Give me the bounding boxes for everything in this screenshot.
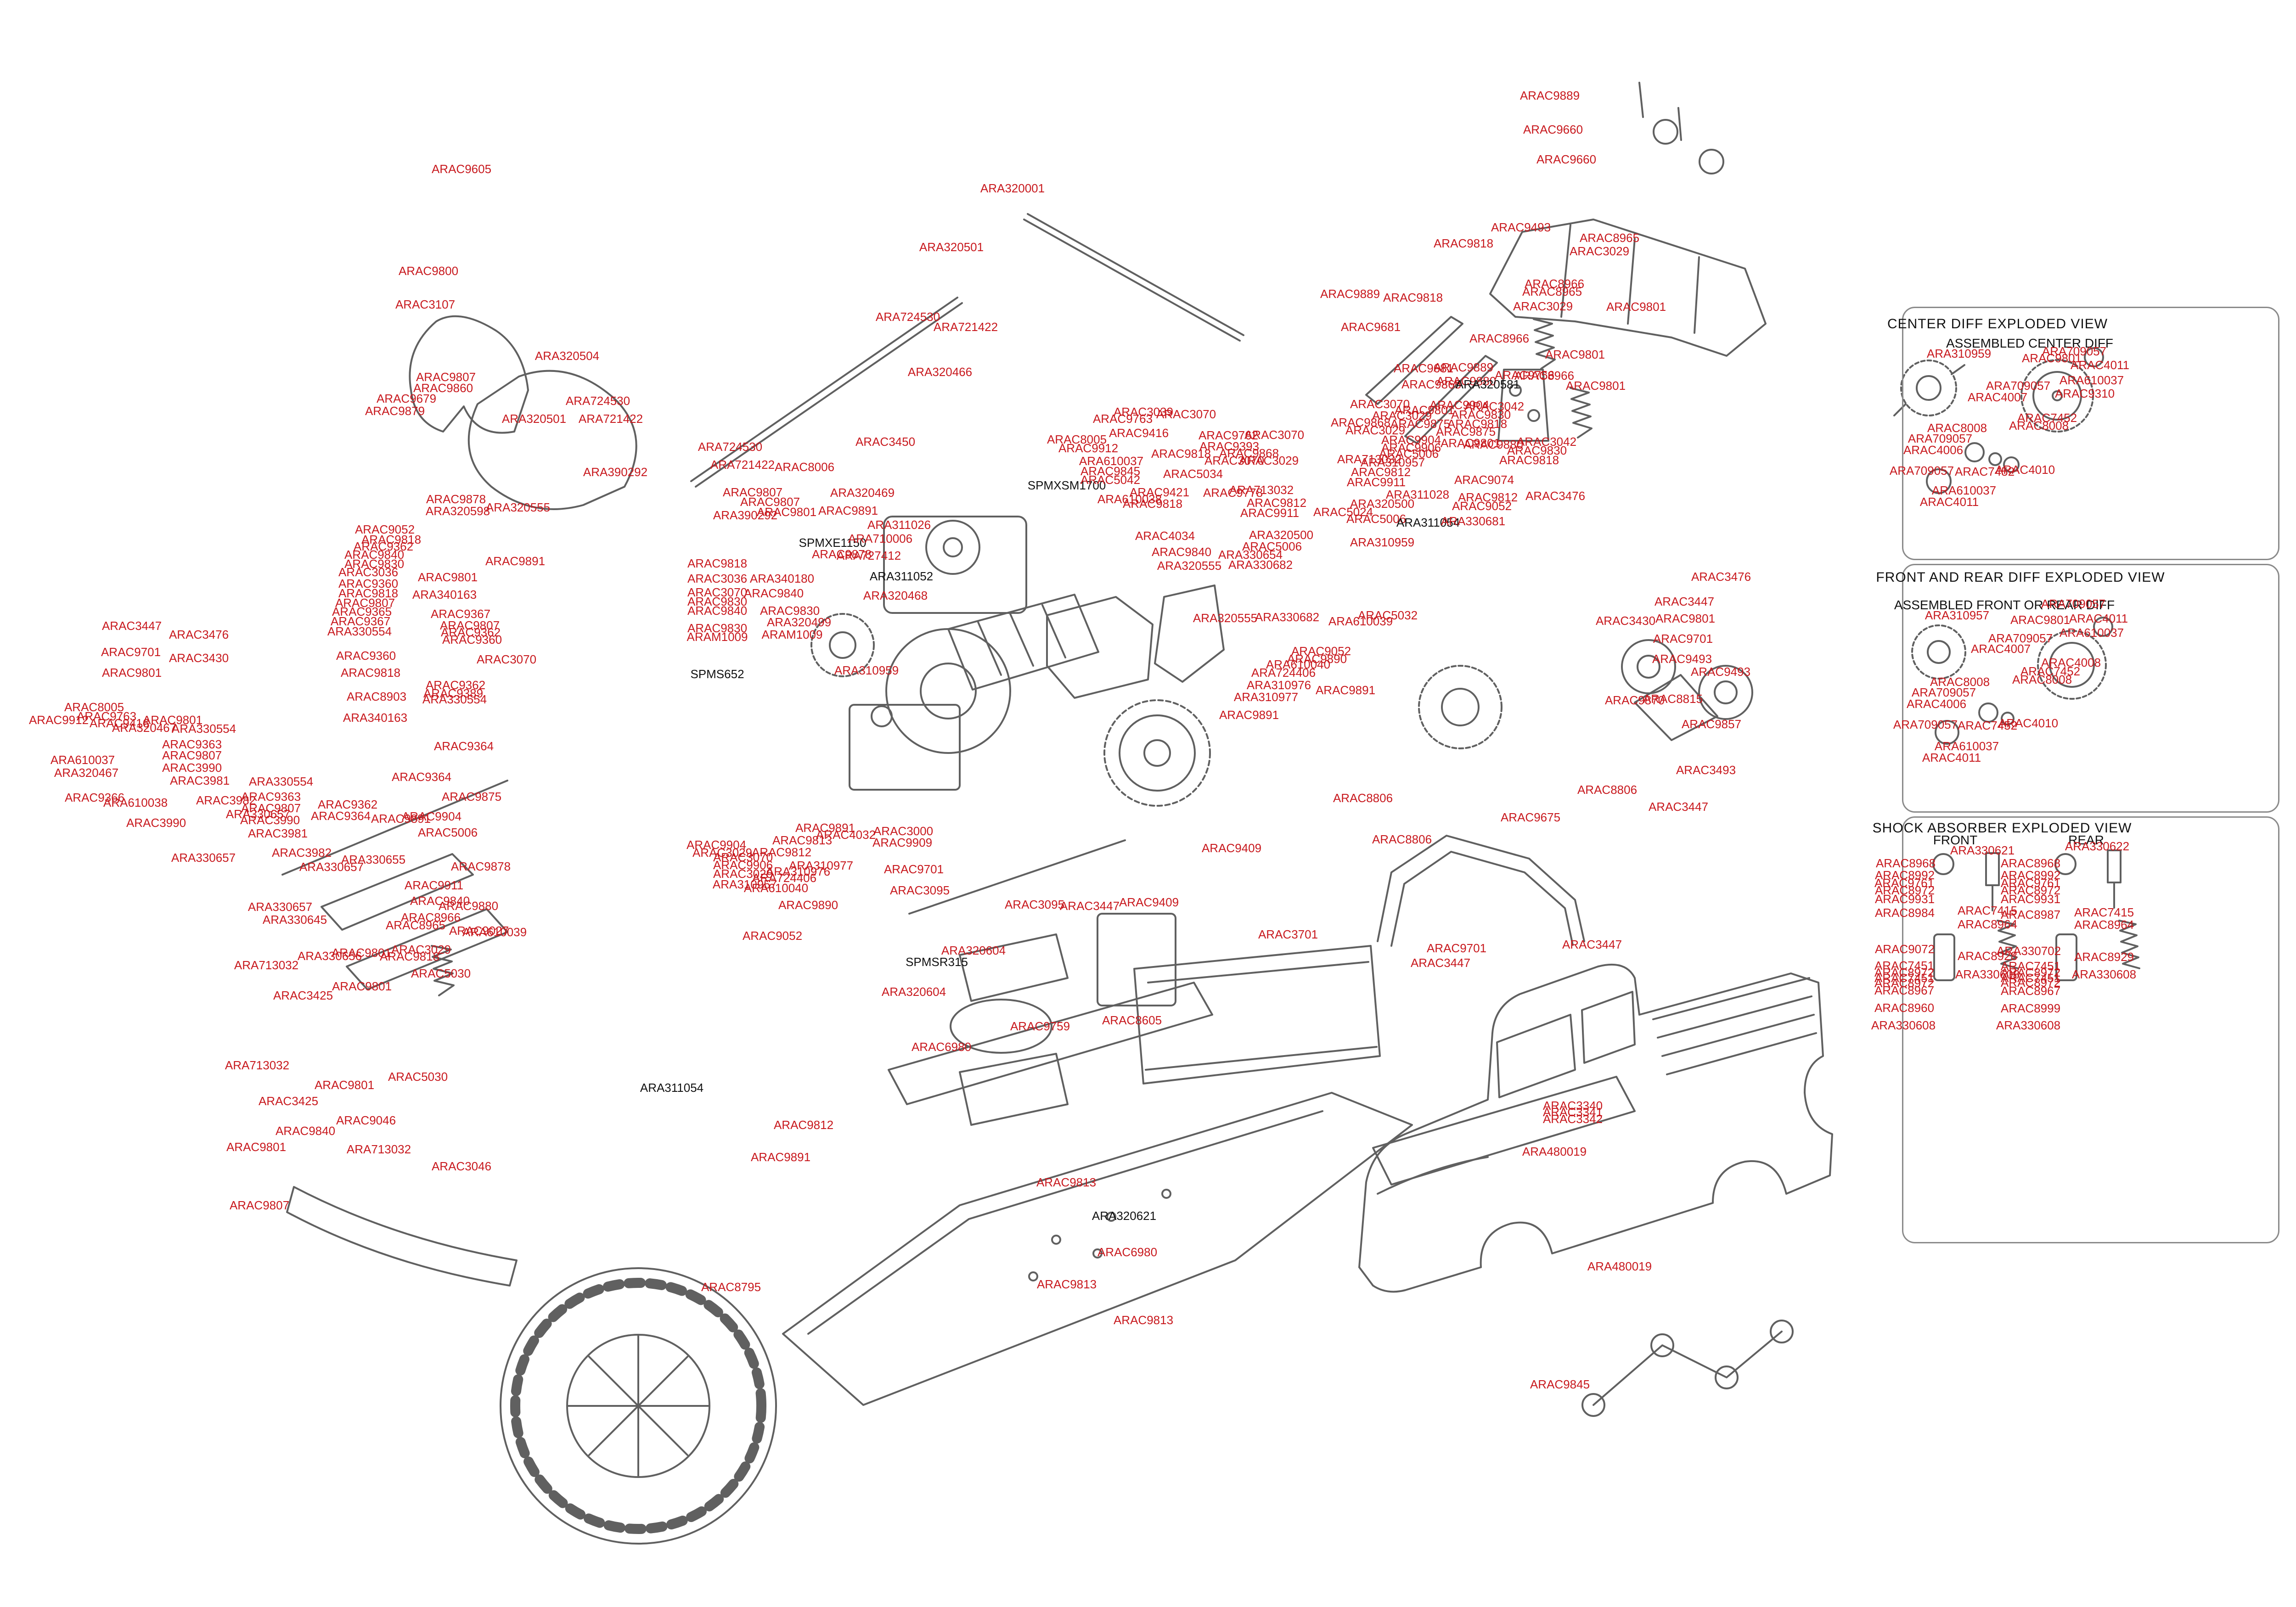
part-label: ARAC8605: [1102, 1014, 1162, 1026]
part-label: ARAC9818: [1151, 448, 1211, 460]
exploded-parts-diagram-page: ARAC9605ARAC9800ARAC3107ARAC9807ARAC9860…: [0, 0, 2296, 1607]
part-label: ARAC9931: [2001, 893, 2060, 905]
part-label: ARAC9891: [485, 555, 545, 567]
part-label: ARAC9911: [405, 879, 463, 891]
part-label: ARAC5034: [1163, 468, 1223, 480]
part-label: ARAC3070: [477, 653, 536, 665]
part-label: ARAC9360: [336, 650, 396, 662]
part-label: ARA330645: [263, 914, 327, 926]
part-label: ARA721422: [934, 321, 998, 333]
part-label: ARA310977: [1234, 691, 1298, 703]
part-label: ARAC3447: [1654, 596, 1714, 607]
part-label: ARA724530: [698, 441, 762, 453]
part-label: ARAC9801: [315, 1079, 374, 1091]
part-label: ARAC3476: [1691, 571, 1751, 583]
part-label: ARA610040: [744, 882, 808, 894]
part-label: ARAC9360: [442, 634, 502, 646]
part-label: ARAC3070: [1244, 429, 1304, 441]
part-label: ARAC9931: [1875, 893, 1935, 905]
part-label: ARAC9911: [1347, 476, 1406, 488]
part-label: ARAC9912: [1058, 442, 1118, 454]
part-label: ARA721422: [710, 459, 775, 471]
part-label: ARA480019: [1587, 1260, 1652, 1272]
part-label: ARAC3982: [272, 847, 332, 859]
part-label: ARAC9493: [1491, 221, 1551, 233]
part-label: ARAC9701: [1427, 942, 1486, 954]
part-label: ARAC8806: [1577, 784, 1637, 796]
part-label: ARA320555: [1157, 560, 1221, 572]
part-label: ARAC9909: [872, 837, 932, 848]
panel-title-front-rear-diff: FRONT AND REAR DIFF EXPLODED VIEW: [1876, 571, 2165, 584]
part-label: ARA610039: [462, 926, 527, 938]
part-label: ARA310977: [789, 860, 853, 871]
part-label: ARA709057: [2042, 345, 2106, 357]
part-label: ARAC3036: [687, 573, 747, 584]
part-label: ARA330657: [171, 852, 236, 864]
part-label: ARAC9416: [1109, 427, 1169, 439]
part-label: ARAC3476: [1525, 490, 1585, 502]
part-label: ARAM1009: [762, 629, 823, 641]
part-label: ARAC3701: [1258, 928, 1318, 940]
part-label: ARA320604: [941, 944, 1006, 956]
part-label: ARAC3029: [1570, 245, 1629, 257]
part-label: ARA320555: [486, 501, 550, 513]
part-label: ARA311052: [870, 570, 933, 582]
part-label: ARAC3107: [395, 298, 455, 310]
part-label: ARAC9052: [743, 930, 802, 942]
part-label: ARAC9878: [451, 860, 511, 872]
part-label: ARA311026: [867, 519, 931, 531]
part-label: ARAC9605: [432, 163, 491, 175]
part-label: ARAC9701: [1653, 633, 1713, 645]
part-label: ARAC3447: [1411, 957, 1470, 969]
part-label: ARAC4010: [1998, 717, 2058, 729]
part-label: ARAC9878: [426, 493, 486, 505]
part-label: ARAC3095: [1005, 899, 1064, 910]
part-label: ARAC9801: [2010, 614, 2070, 626]
part-label: ARAC8987: [2001, 909, 2060, 921]
part-label: ARAC9801: [226, 1141, 286, 1153]
part-label: ARA340163: [412, 589, 477, 601]
part-label: ARAC9759: [1010, 1020, 1070, 1032]
part-label: ARAC9818: [1499, 454, 1559, 466]
part-label: ARAC8960: [1874, 1002, 1934, 1014]
part-label: ARA710006: [848, 533, 912, 545]
part-label: ARAC9364: [392, 771, 451, 783]
part-label: ARA320500: [1350, 498, 1414, 510]
motor-drawing: [886, 595, 1098, 753]
part-label: ARAC9891: [1316, 684, 1375, 696]
part-label: ARAC3447: [1562, 938, 1622, 950]
part-label: ARAC3450: [855, 436, 915, 448]
part-label: ARAC3990: [240, 814, 300, 826]
part-label: ARA330682: [1228, 559, 1293, 571]
part-label: ARAC8903: [347, 691, 406, 702]
part-label: ARA330554: [172, 723, 236, 735]
part-label: ARAC9801: [102, 667, 162, 679]
part-label: ARAC9364: [434, 740, 494, 752]
part-label: ARAC3981: [170, 775, 230, 787]
part-label: ARA610037: [2060, 627, 2124, 639]
part-label: ARAC9801: [1566, 380, 1626, 392]
part-label: ARAC9807: [162, 749, 222, 761]
part-label: ARAC9818: [1434, 237, 1493, 249]
part-label: ARAC6980: [1097, 1246, 1157, 1258]
part-label: ARAC3476: [169, 629, 229, 641]
part-label: ARA330608: [1996, 1019, 2060, 1031]
part-label: ARA320501: [502, 413, 566, 425]
part-label: ARAC8968: [2001, 857, 2060, 869]
part-label: ARAC9818: [1447, 418, 1507, 430]
part-label: ARAC4007: [1971, 643, 2031, 655]
part-label: ARAC3046: [432, 1160, 491, 1172]
part-label: ARAC4006: [1907, 698, 1966, 710]
part-label: ARAC5030: [388, 1071, 448, 1083]
part-label: ARAC9818: [687, 557, 747, 569]
part-label: ARAC9660: [1523, 124, 1583, 135]
part-label: ARAC9875: [442, 791, 501, 803]
part-label: ARAM1009: [687, 631, 748, 643]
part-label: ARAC9818: [380, 950, 439, 962]
part-label: ARAC4010: [1995, 464, 2055, 476]
part-label: ARAC8984: [1875, 907, 1935, 919]
part-label: ARA320555: [1193, 612, 1257, 624]
part-label: ARAC8966: [1514, 370, 1574, 382]
part-label: ARAC8965: [1580, 232, 1639, 244]
part-label: ARAC9072: [1875, 943, 1935, 955]
part-label: ARAC3990: [126, 817, 186, 829]
part-label: ARAC4006: [1903, 444, 1963, 456]
part-label: ARAC9840: [687, 605, 747, 617]
part-label: ARAC9889: [1434, 361, 1493, 373]
part-label: ARAC9911: [1240, 507, 1299, 519]
part-label: ARAC9801: [1655, 612, 1715, 624]
part-label: ARA320598: [426, 505, 490, 517]
part-label: ARAC9857: [1682, 718, 1741, 730]
part-label: ARA330554: [249, 775, 313, 787]
part-label: ARAC9889: [1520, 90, 1580, 101]
part-label: ARAC8008: [2009, 420, 2069, 432]
part-label: ARA330554: [422, 693, 487, 705]
part-label: ARAC9891: [1219, 709, 1279, 721]
part-label: ARA709057: [1893, 719, 1958, 730]
part-label: ARAC4011: [1922, 752, 1981, 764]
part-label: ARAC8966: [1469, 332, 1529, 344]
part-label: ARAC9409: [1119, 896, 1179, 908]
front-diff-drawing: [1419, 666, 1502, 748]
part-label: ARAC9807: [241, 802, 301, 814]
part-label: ARAC3095: [890, 884, 950, 896]
part-label: ARAC3425: [273, 989, 333, 1001]
part-label: ARAC4011: [2071, 359, 2129, 371]
part-label: ARA330622: [2065, 840, 2129, 852]
part-label: ARA713032: [225, 1059, 289, 1071]
part-label: ARAC9679: [377, 393, 436, 405]
part-label: ARAC4034: [1135, 530, 1195, 542]
part-label: ARAC9818: [341, 667, 400, 679]
part-label: ARAC9701: [101, 646, 161, 658]
part-label: ARAC8965: [386, 919, 445, 931]
part-label: ARAC3447: [1060, 900, 1120, 912]
part-label: ARA330682: [1255, 611, 1319, 623]
part-label: ARA480019: [1522, 1146, 1587, 1157]
truck-body-drawing: [1359, 965, 1832, 1292]
part-label: ARA713032: [347, 1143, 411, 1155]
part-label: ARAC9801: [332, 980, 392, 992]
part-label: ARAC8966: [1525, 278, 1584, 290]
part-label: ARA340180: [750, 573, 814, 584]
part-label: ARAC4032: [816, 829, 876, 841]
part-label: ARAC9046: [336, 1114, 396, 1126]
part-label: ARAC3447: [1649, 801, 1708, 813]
part-label: ARAC9818: [1383, 292, 1443, 303]
part-label: ARA320001: [980, 182, 1045, 194]
part-label: ARAC8006: [775, 461, 834, 473]
part-label: ARA310959: [834, 664, 899, 676]
part-label: ARA320468: [863, 590, 928, 601]
part-label: ARAC9813: [1114, 1314, 1173, 1326]
part-label: ARAC9801: [418, 571, 478, 583]
part-label: ARAC9800: [399, 265, 458, 277]
part-label: ARA721422: [579, 413, 643, 425]
part-label: ARAC8964: [2074, 919, 2134, 931]
panel-shock-absorber: [1902, 816, 2279, 1243]
part-label: ARAC8968: [1876, 857, 1936, 869]
part-label: ARAC9818: [1123, 498, 1182, 510]
part-label: ARA320501: [919, 241, 984, 253]
part-label: ARA713032: [234, 959, 298, 971]
part-label: ARA330554: [327, 625, 392, 637]
part-label: ARA320466: [908, 366, 972, 378]
panel-title-center-diff: CENTER DIFF EXPLODED VIEW: [1887, 317, 2108, 331]
part-label: ARAC9701: [884, 863, 944, 875]
part-label: ARAC9891: [818, 505, 878, 517]
part-label: ARAC9840: [1152, 546, 1211, 558]
part-label: ARAC9840: [276, 1125, 335, 1137]
part-label: ARAC5032: [1358, 609, 1418, 621]
part-label: ARAC8967: [1874, 984, 1934, 996]
spur-gear-drawing: [811, 585, 1224, 806]
part-label: ARA310957: [1925, 609, 1989, 621]
part-label: SPMS652: [690, 668, 744, 680]
part-label: ARA330608: [1871, 1019, 1936, 1031]
part-label: ARAC8008: [2012, 674, 2072, 686]
part-label: ARA724530: [876, 311, 940, 323]
part-label: ARA724530: [566, 395, 630, 407]
part-label: ARA340163: [343, 712, 407, 724]
part-label: ARAC9493: [1691, 666, 1750, 678]
part-label: ARAC3981: [248, 827, 308, 839]
part-label: ARA310959: [1927, 348, 1991, 360]
part-label: ARA610037: [2060, 374, 2124, 386]
part-label: ARAC3425: [259, 1095, 318, 1107]
part-label: ARA330681: [1441, 515, 1505, 527]
part-label: ARAC9812: [774, 1119, 833, 1131]
part-label: ARAC3029: [1239, 455, 1299, 466]
part-label: ARAC9840: [744, 587, 804, 599]
tire-drawing: [501, 1268, 776, 1544]
part-label: ARAC9364: [311, 810, 371, 822]
part-label: ARAC7415: [2074, 906, 2134, 918]
part-label: ARAC8967: [2001, 985, 2060, 997]
part-label: ARAC9813: [1037, 1278, 1097, 1290]
bumper-drawing: [287, 1187, 517, 1286]
part-label: ARA610038: [103, 797, 168, 809]
part-label: ARA330702: [1997, 945, 2061, 957]
part-label: ARA709057: [1890, 465, 1954, 477]
roll-cage-drawing: [1378, 836, 1584, 946]
part-label: ARA330621: [1950, 844, 2015, 856]
part-label: ARA390292: [713, 509, 777, 521]
part-label: ARAC8806: [1333, 792, 1393, 804]
part-label: ARA320467: [54, 767, 118, 779]
part-label: ARAC9912: [29, 714, 89, 726]
part-label: ARAC5006: [418, 826, 478, 838]
part-label: ARA320499: [767, 616, 831, 628]
part-label: ARA724406: [1251, 667, 1316, 679]
body-mount-brace-drawing: [1582, 1320, 1793, 1416]
part-label: ARAC4007: [1968, 391, 2027, 403]
part-label: ARAC8929: [2074, 951, 2134, 963]
part-label: ARAC9845: [1530, 1378, 1590, 1390]
part-label: ARAC5006: [1242, 540, 1302, 552]
part-label: ARAC9675: [1501, 811, 1560, 823]
part-label: ARAC8806: [1372, 833, 1432, 845]
part-label: ARAC9904: [402, 810, 461, 822]
part-label: ARA709057: [2041, 598, 2105, 610]
part-label: ARAC9660: [1536, 153, 1596, 165]
part-label: ARA320504: [535, 350, 599, 362]
part-label: ARA310959: [1350, 536, 1414, 548]
driveshaft-drawing: [282, 214, 1244, 914]
part-label: ARAC3342: [1543, 1113, 1603, 1125]
part-label: ARAC9813: [1036, 1176, 1096, 1188]
part-label: ARA330657: [299, 861, 364, 873]
part-label: ARAC3430: [169, 652, 229, 664]
part-label: ARAC6980: [912, 1041, 971, 1053]
part-label: ARA320469: [830, 487, 895, 499]
part-label: ARAC9890: [778, 899, 838, 911]
part-label: ARAC9870: [1605, 694, 1665, 706]
part-label: ARAC9681: [1341, 321, 1401, 333]
part-label: ARAC9052: [1452, 500, 1512, 512]
part-label: ARA330657: [248, 901, 312, 913]
part-label: ARAC3430: [1596, 615, 1655, 627]
part-label: ARAC3029: [1513, 300, 1573, 312]
part-label: ARA311054: [640, 1082, 703, 1094]
part-label: ARAC9807: [230, 1199, 289, 1211]
part-label: ARAC9074: [1454, 474, 1514, 486]
part-label: ARAC9879: [365, 405, 425, 417]
part-label: ARAC8795: [701, 1281, 761, 1293]
part-label: ARA320604: [882, 986, 946, 998]
part-label: ARAC9891: [751, 1151, 810, 1163]
part-label: ARAC8999: [2001, 1002, 2060, 1014]
part-label: ARAC9493: [1652, 653, 1712, 665]
part-label: ARAC3447: [102, 620, 162, 632]
part-label: ARAC5030: [411, 967, 471, 979]
part-label: ARAC9801: [1545, 348, 1605, 360]
part-label: ARAC9801: [1606, 301, 1666, 313]
part-label: ARAC3990: [162, 762, 222, 774]
part-label: ARAC4011: [2069, 612, 2128, 624]
part-label: ARA330608: [2072, 968, 2136, 980]
part-label: ARAC3070: [1156, 408, 1216, 420]
part-label: ARAC9878: [812, 548, 872, 560]
part-label: ARA320621: [1092, 1210, 1156, 1222]
part-label: ARAC9409: [1202, 842, 1261, 854]
part-label: ARAC3493: [1676, 764, 1736, 776]
part-label: ARAC9889: [1320, 288, 1380, 300]
part-label: ARAC4011: [1920, 496, 1979, 508]
part-label: SPMSR315: [906, 956, 968, 968]
part-label: ARA610037: [51, 754, 115, 766]
part-label: ARA713032: [1229, 484, 1294, 496]
part-label: ARAC5042: [1080, 474, 1140, 486]
part-label: ARAC9310: [2055, 388, 2115, 399]
part-label: ARA390292: [583, 466, 647, 478]
part-label: ARA310976: [1247, 679, 1311, 691]
